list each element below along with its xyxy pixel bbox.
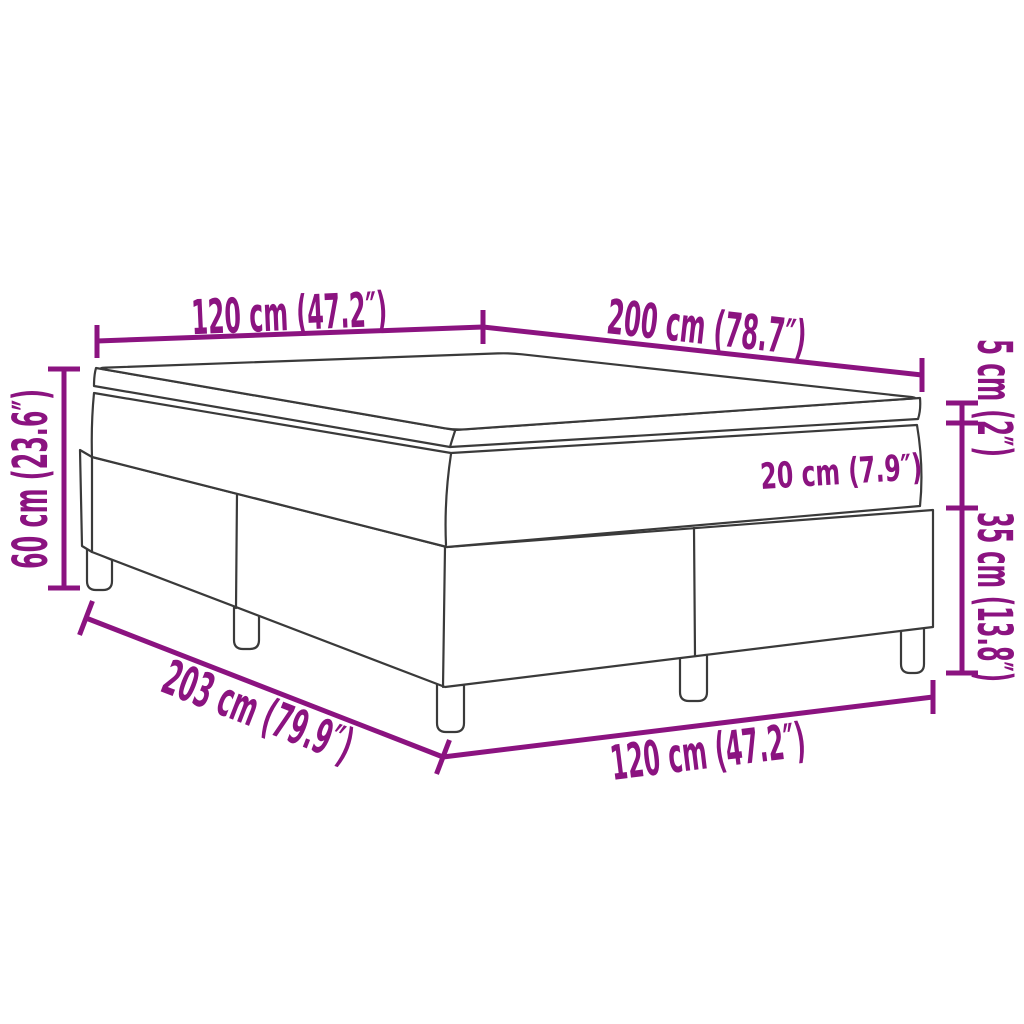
dim-label-bottom-length: 203 cm (79.9″) bbox=[154, 650, 361, 775]
bed-leg-right-mid bbox=[680, 654, 707, 701]
bed-leg-right-corner bbox=[901, 627, 924, 673]
diagram-svg: 120 cm (47.2″) 200 cm (78.7″) 5 cm (2″) … bbox=[0, 0, 1024, 1024]
dim-label-top-length: 200 cm (78.7″) bbox=[604, 289, 809, 367]
dim-label-bottom-width: 120 cm (47.2″) bbox=[607, 712, 808, 791]
dim-label-base-height: 35 cm (13.8″) bbox=[966, 512, 1022, 682]
dim-label-total-height: 60 cm (23.6″) bbox=[3, 389, 59, 569]
bed-dimension-diagram: 120 cm (47.2″) 200 cm (78.7″) 5 cm (2″) … bbox=[0, 0, 1024, 1024]
bed-frame-seam-right bbox=[694, 528, 695, 656]
bed-frame-seam-front bbox=[236, 493, 237, 608]
dim-label-topper-height: 5 cm (2″) bbox=[966, 339, 1022, 457]
bed-leg-front-corner bbox=[437, 684, 464, 732]
dim-label-top-width: 120 cm (47.2″) bbox=[190, 282, 388, 346]
